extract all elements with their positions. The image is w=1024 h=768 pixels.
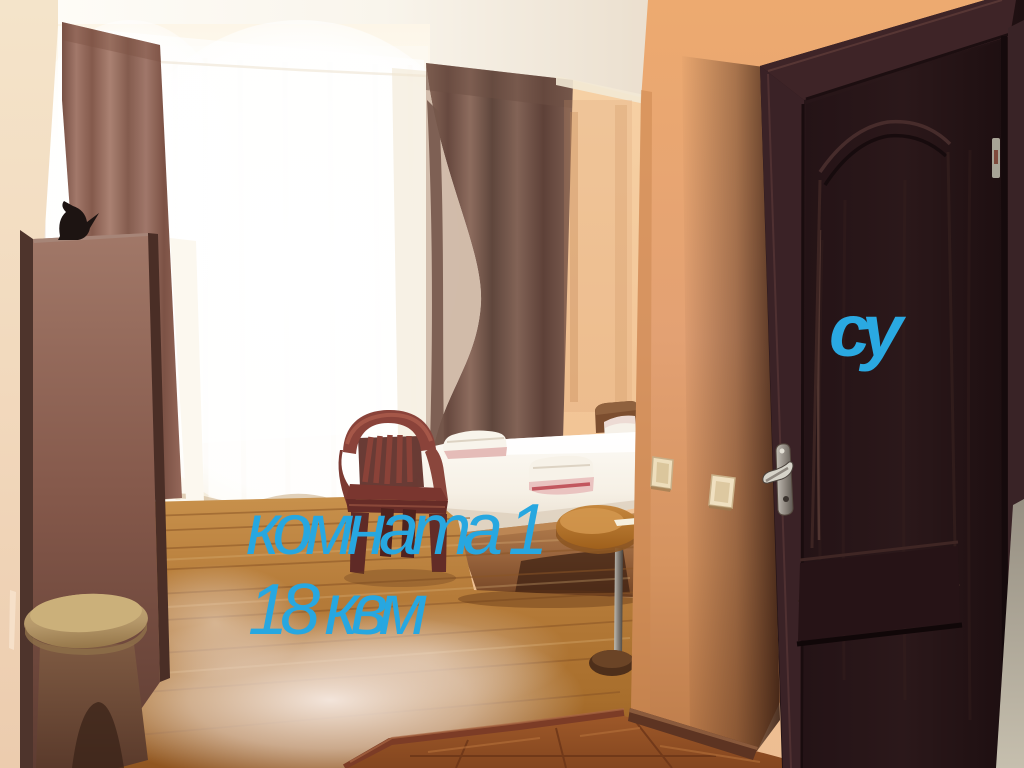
svg-text:комната 1: комната 1 (246, 490, 548, 570)
svg-text:18 квм: 18 квм (248, 570, 428, 650)
svg-text:су: су (829, 289, 907, 372)
